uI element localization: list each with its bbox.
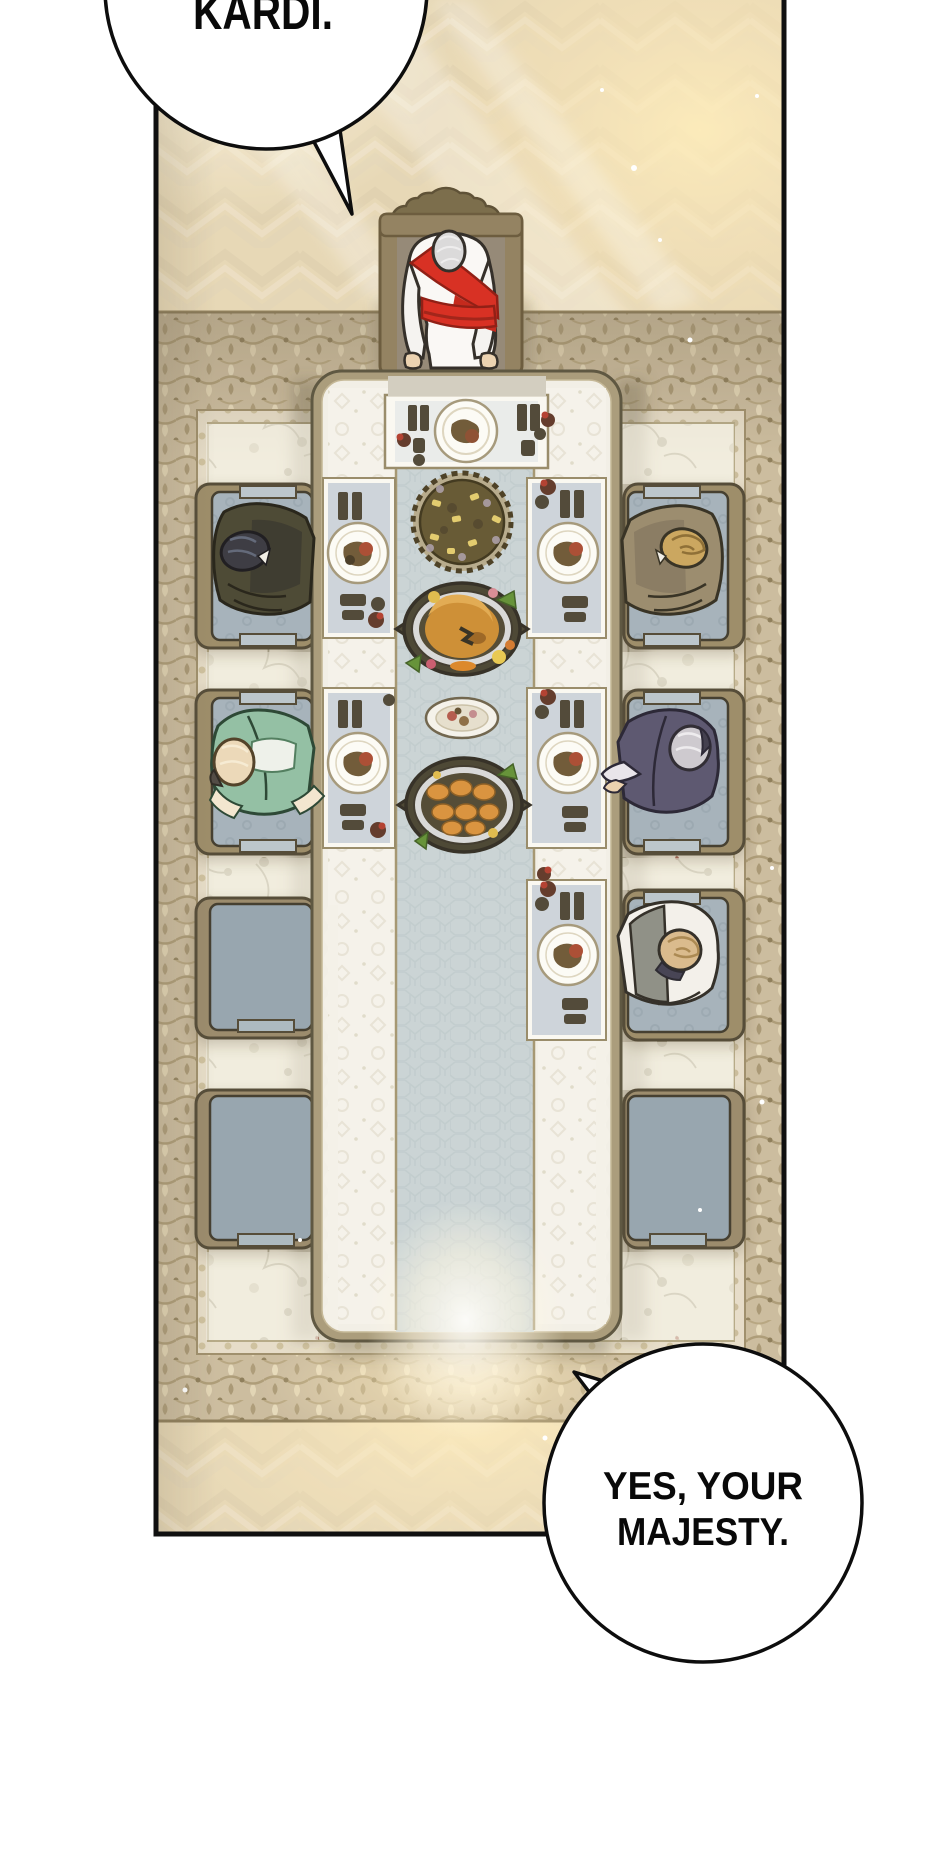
svg-text:MAJESTY.: MAJESTY. — [617, 1511, 789, 1554]
svg-text:KARDI.: KARDI. — [193, 0, 333, 40]
svg-text:YES, YOUR: YES, YOUR — [603, 1465, 803, 1508]
